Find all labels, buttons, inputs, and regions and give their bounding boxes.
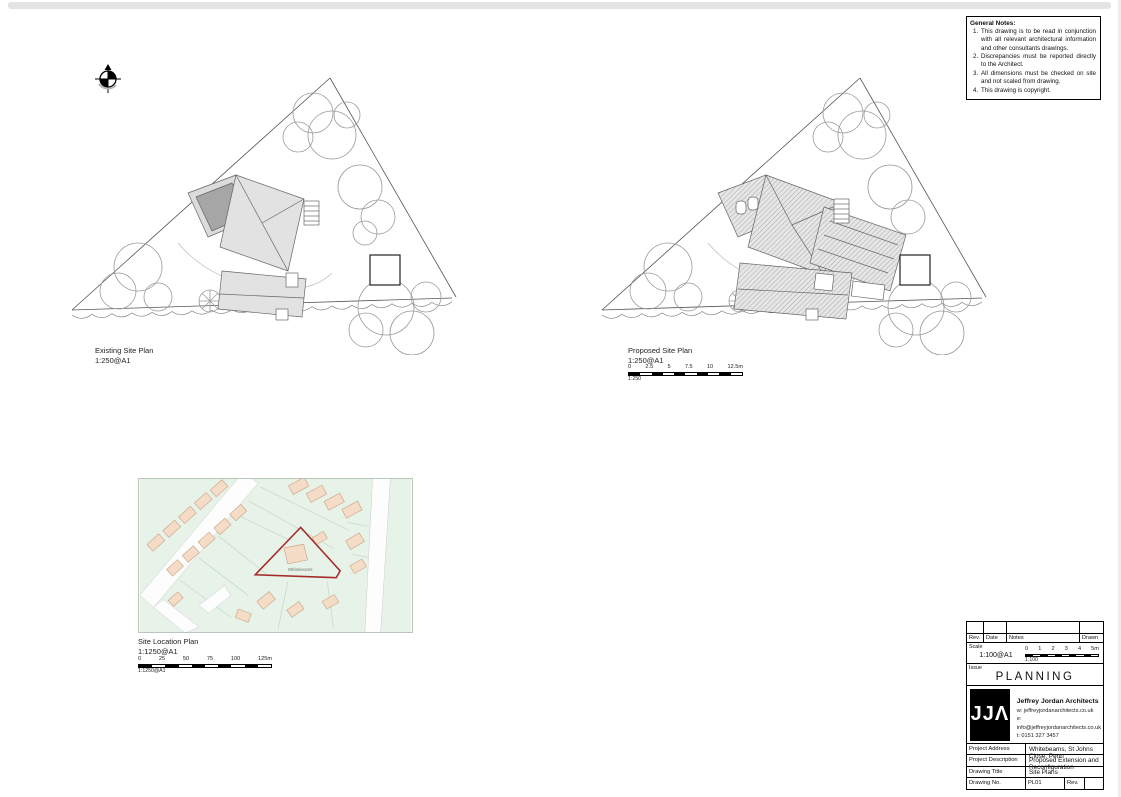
scalebar-ratio: 1:1250@A1 bbox=[138, 669, 272, 674]
project-description-row: Project Description Proposed Extension a… bbox=[967, 755, 1103, 767]
firm-phone: t: 0151 327 3457 bbox=[1017, 732, 1101, 740]
firm-email: e: info@jeffreyjordanarchitects.co.uk bbox=[1017, 715, 1101, 732]
drawing-title-row: Drawing Title Site Plans bbox=[967, 767, 1103, 778]
scalebar-ticks: 0255075100125m bbox=[138, 657, 272, 663]
scale-row: Scale 1:100@A1 012345m 1:100 bbox=[967, 643, 1103, 664]
proposed-plan-title: Proposed Site Plan bbox=[628, 346, 692, 356]
drawing-number-row: Drawing No. PL01 Rev. bbox=[967, 778, 1103, 789]
scalebar-bar bbox=[628, 372, 743, 376]
revision-row-empty bbox=[967, 622, 1103, 634]
firm-name: Jeffrey Jordan Architects bbox=[1017, 698, 1101, 705]
general-note: 4. This drawing is copyright. bbox=[970, 87, 1096, 95]
existing-site-plan-drawing bbox=[60, 75, 460, 355]
location-plan-scale: 1:1250@A1 bbox=[138, 647, 198, 657]
scalebar-ticks: 02.557.51012.5m bbox=[628, 365, 743, 371]
drawing-number-label: Drawing No. bbox=[967, 778, 1026, 789]
drawing-sheet: { "notes": { "title": "General Notes:", … bbox=[0, 0, 1121, 797]
drawing-title-value: Site Plans bbox=[1026, 767, 1103, 777]
scalebar-ratio: 1:100 bbox=[1025, 658, 1099, 663]
location-plan-scalebar: 0255075100125m 1:1250@A1 bbox=[138, 657, 272, 674]
notes-col-header: Notes bbox=[1007, 634, 1080, 643]
firm-row: JJΛ Jeffrey Jordan Architects w: jeffrey… bbox=[967, 686, 1103, 744]
location-plan-title: Site Location Plan bbox=[138, 637, 198, 647]
general-notes-title: General Notes: bbox=[970, 20, 1096, 27]
issue-value: PLANNING bbox=[967, 664, 1103, 683]
proposed-site-plan-drawing bbox=[590, 75, 990, 355]
issue-label: Issue bbox=[969, 665, 982, 671]
general-note: 2. Discrepancies must be reported direct… bbox=[970, 53, 1096, 70]
scalebar-bar bbox=[138, 664, 272, 668]
rev-label: Rev. bbox=[1065, 778, 1085, 789]
title-block-scalebar: 012345m 1:100 bbox=[1025, 643, 1103, 663]
jja-logo: JJΛ bbox=[970, 689, 1010, 741]
drawing-number-value: PL01 bbox=[1026, 778, 1065, 789]
existing-plan-title: Existing Site Plan bbox=[95, 346, 153, 356]
general-note: 1. This drawing is to be read in conjunc… bbox=[970, 28, 1096, 53]
map-site-label: Whitebeams bbox=[288, 567, 313, 572]
drawn-col-header: Drawn bbox=[1080, 634, 1103, 643]
scalebar-ticks: 012345m bbox=[1025, 647, 1099, 653]
firm-details: Jeffrey Jordan Architects w: jeffreyjord… bbox=[1011, 688, 1101, 741]
existing-plan-scale: 1:250@A1 bbox=[95, 356, 153, 366]
proposed-plan-caption: Proposed Site Plan 1:250@A1 bbox=[628, 346, 692, 366]
existing-plan-caption: Existing Site Plan 1:250@A1 bbox=[95, 346, 153, 366]
project-address-row: Project Address Whitebeams, St Johns Clo… bbox=[967, 744, 1103, 756]
proposed-plan-scalebar: 02.557.51012.5m 1:250 bbox=[628, 365, 743, 382]
date-col-header: Date bbox=[984, 634, 1007, 643]
drawing-title-label: Drawing Title bbox=[967, 767, 1026, 777]
rev-value bbox=[1085, 778, 1103, 789]
rev-col-header: Rev. bbox=[967, 634, 984, 643]
site-location-map: Whitebeams bbox=[138, 478, 413, 633]
scalebar-ratio: 1:250 bbox=[628, 377, 743, 382]
viewer-top-edge bbox=[8, 2, 1111, 9]
revision-header-row: Rev. Date Notes Drawn bbox=[967, 634, 1103, 644]
firm-website: w: jeffreyjordanarchitects.co.uk bbox=[1017, 707, 1101, 715]
title-block: Rev. Date Notes Drawn Scale 1:100@A1 012… bbox=[966, 621, 1104, 790]
location-plan-caption: Site Location Plan 1:1250@A1 bbox=[138, 637, 198, 657]
general-note: 3. All dimensions must be checked on sit… bbox=[970, 70, 1096, 87]
plot-marker-square bbox=[370, 255, 400, 285]
proposed-building bbox=[718, 175, 906, 320]
issue-row: Issue PLANNING bbox=[967, 664, 1103, 686]
plot-marker-square bbox=[900, 255, 930, 285]
scale-label: Scale bbox=[969, 644, 983, 650]
general-notes-box: General Notes: 1. This drawing is to be … bbox=[966, 16, 1101, 100]
